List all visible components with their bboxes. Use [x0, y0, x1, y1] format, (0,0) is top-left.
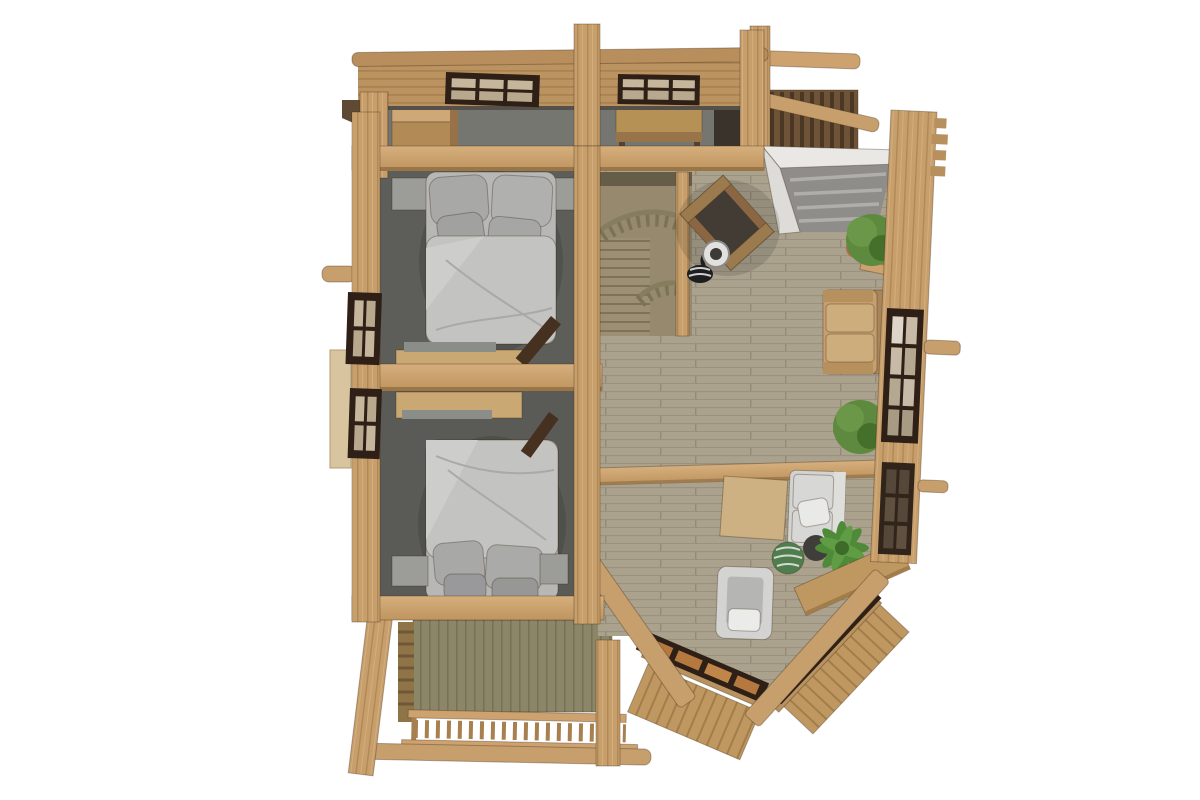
dresser-shelf	[402, 410, 492, 419]
log-end-left	[322, 266, 356, 282]
green-pouf	[772, 542, 804, 574]
window-pane	[366, 426, 376, 451]
sideboard-shelf	[404, 342, 496, 352]
window-pane	[623, 79, 644, 87]
nightstand	[392, 178, 430, 210]
window-pane	[903, 379, 915, 406]
window-pane	[451, 78, 475, 88]
window-pane	[353, 330, 363, 356]
sofa-cushion	[826, 334, 874, 362]
post-northeast	[740, 30, 764, 156]
window-pane	[886, 469, 897, 493]
window-pane	[883, 525, 894, 548]
log-end	[933, 150, 946, 161]
stair-treads	[598, 238, 650, 336]
window-pane	[887, 409, 899, 435]
hall-desk	[616, 104, 702, 147]
window-pane	[673, 80, 695, 88]
window-pane	[479, 79, 503, 89]
window-pane	[354, 425, 364, 450]
window-pane	[355, 396, 365, 421]
wall-south-bedroom	[352, 596, 604, 620]
window-pane	[901, 410, 913, 436]
balcony-exterior-wall	[413, 620, 612, 712]
north-window-1	[445, 72, 540, 107]
wall-north-interior	[352, 146, 764, 170]
bed-1	[426, 172, 556, 344]
wall-west	[352, 112, 380, 622]
window-pane	[479, 91, 503, 101]
log-end	[934, 118, 946, 129]
window-pane	[366, 301, 376, 327]
window-pane	[897, 498, 908, 522]
window-pane	[889, 378, 901, 405]
staircase	[598, 172, 692, 336]
white-armchair	[715, 566, 773, 640]
wall-bedrooms-living	[574, 146, 600, 624]
nightstand	[540, 554, 568, 584]
wall-peg	[918, 480, 949, 493]
window-pane	[890, 347, 902, 374]
window-pane	[905, 317, 917, 344]
window-pane	[884, 497, 895, 521]
window-pane	[648, 91, 669, 100]
east-window-1	[881, 308, 924, 444]
window-pane	[896, 526, 907, 549]
west-window-2	[348, 388, 382, 459]
log-end	[930, 166, 945, 177]
window-pane	[904, 348, 916, 375]
window-pane	[354, 300, 364, 326]
window-pane	[507, 92, 532, 102]
chair-cushion	[728, 608, 761, 631]
window-pane	[365, 331, 375, 357]
bed-2	[426, 440, 558, 602]
sofa-pillow	[797, 497, 831, 528]
window-pane	[451, 90, 475, 100]
north-window-2	[617, 74, 700, 105]
window-pane	[507, 80, 532, 90]
window-pane	[367, 397, 377, 422]
window-pane	[891, 316, 903, 343]
west-window-1	[345, 292, 381, 365]
window-pane	[899, 470, 910, 494]
balcony-post-right	[596, 640, 620, 766]
east-window-2	[878, 462, 915, 555]
log-end	[932, 134, 948, 145]
nightstand	[392, 556, 428, 586]
tan-sofa	[823, 290, 888, 374]
skylight-frame-top	[762, 146, 898, 168]
wall-peg	[924, 340, 961, 356]
ladder-rungs	[398, 632, 414, 704]
floor-plan-canvas	[0, 0, 1200, 800]
window-pane	[648, 80, 669, 88]
wall-between-bedrooms	[352, 364, 602, 390]
post-north-middle	[574, 24, 600, 156]
window-pane	[673, 91, 695, 100]
rug	[720, 476, 788, 540]
floor-plan-render	[0, 0, 1200, 800]
balcony-ladder	[398, 622, 414, 722]
sofa-cushion	[826, 304, 874, 332]
window-pane	[623, 90, 644, 99]
